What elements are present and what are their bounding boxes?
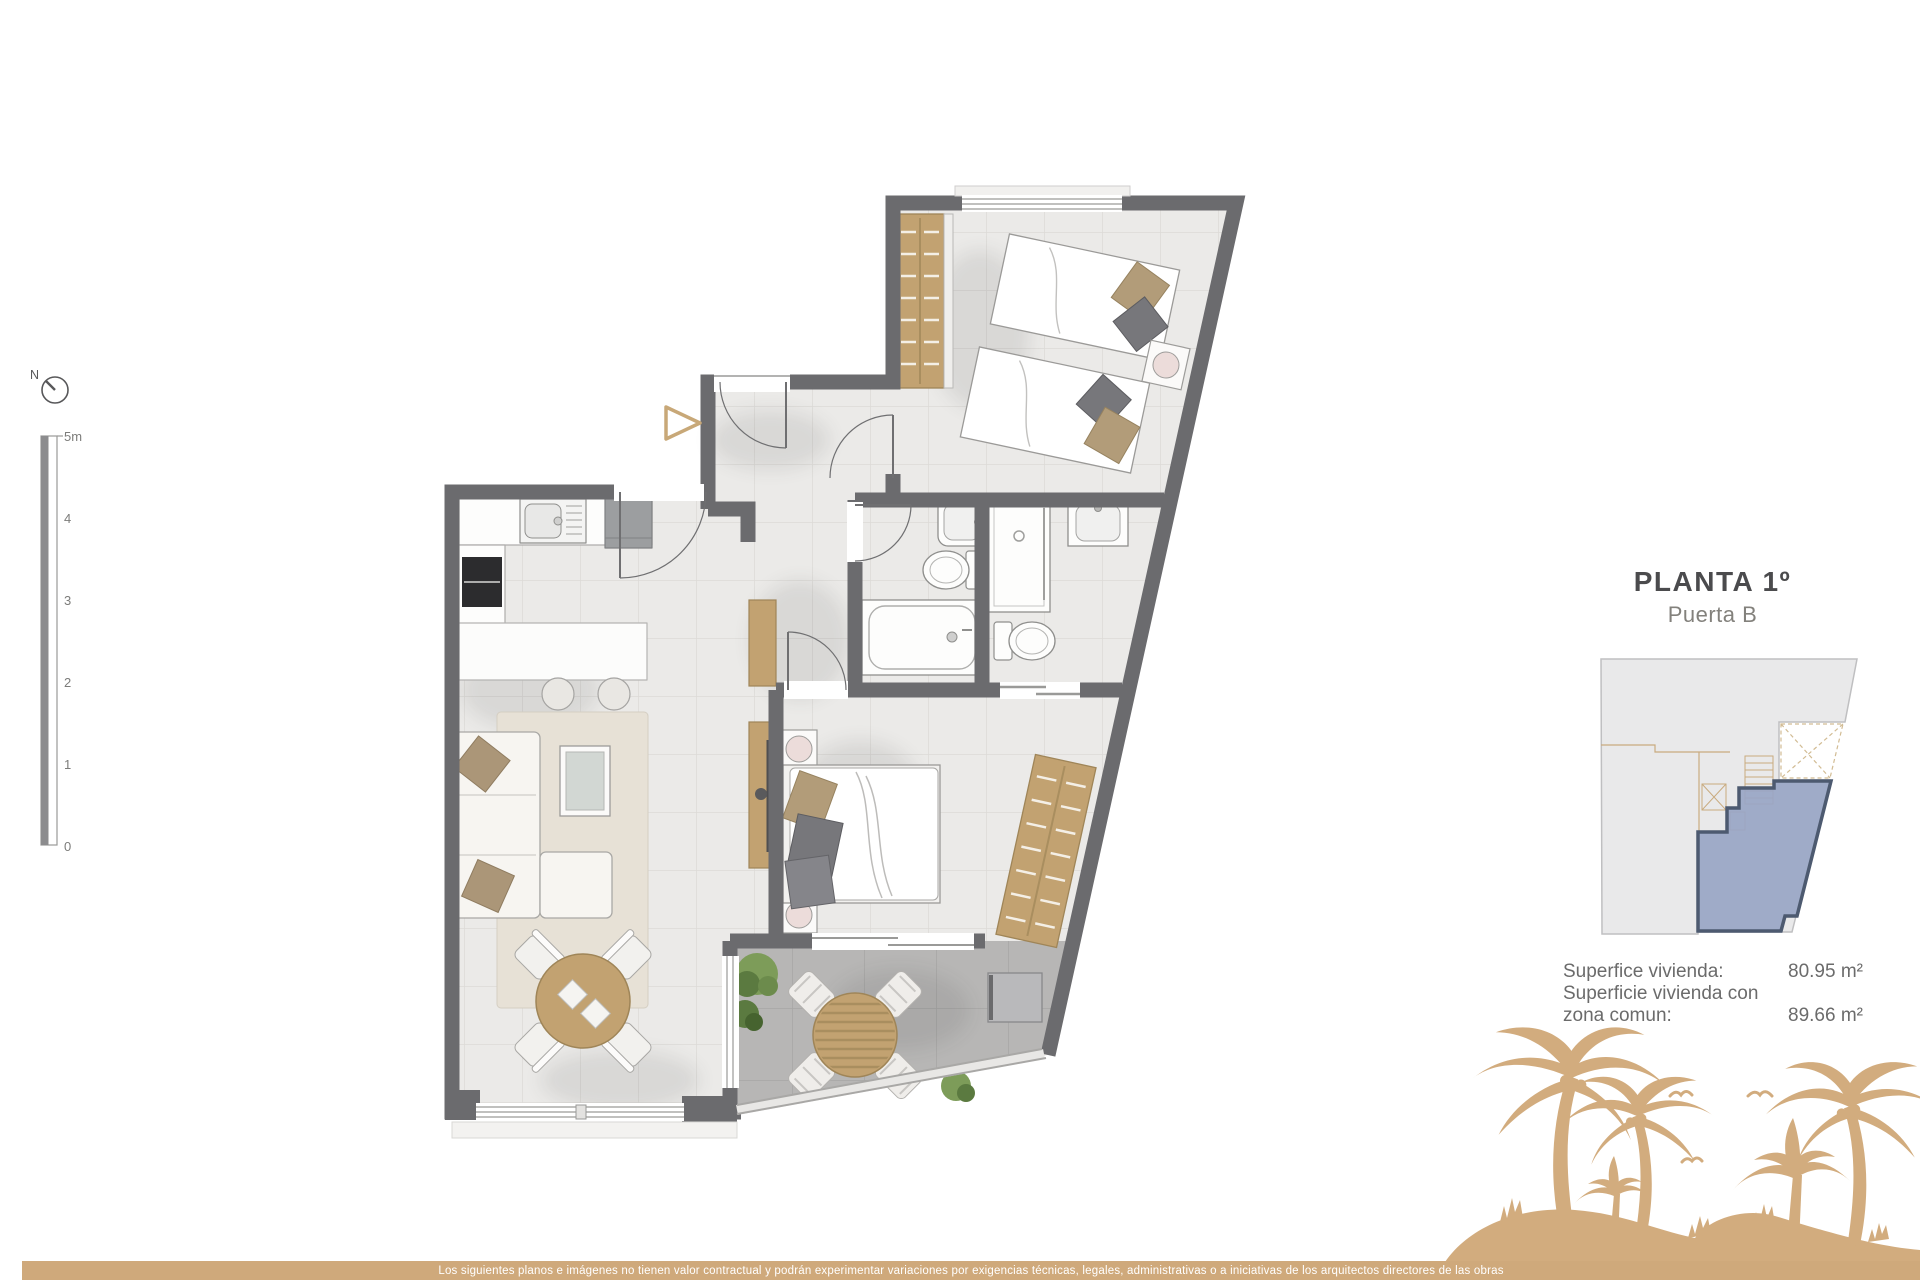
bar-stool [542,678,574,710]
bathtub [862,600,982,675]
bird-icon [1670,1092,1692,1097]
ac-unit [988,973,1042,1022]
scale-label-5m: 5m [64,429,82,444]
kitchen-sink [520,499,586,543]
floorplan-page: N 5m 4 3 2 1 0 [0,0,1920,1280]
kitchen-island [459,623,647,680]
compass-n-label: N [30,368,39,382]
kitchen-fridge [605,495,652,548]
area-row: Superficie vivienda con [1563,983,1863,1005]
toilet [994,622,1055,660]
void-hatch [1781,724,1843,778]
area-label: zona comun: [1563,1005,1672,1027]
ensuite-sliding-door [1000,682,1080,699]
wardrobe [897,214,953,388]
nightstand [1142,340,1190,390]
bar-stool [598,678,630,710]
birds [1670,1092,1772,1163]
lamp [786,736,812,762]
plan-title-block: PLANTA 1º Puerta B [1560,566,1865,628]
scale-label-2: 2 [64,675,71,690]
palm-trees-graphic [1445,1027,1920,1262]
wall-pier [445,1090,480,1120]
plan-graphics: N 5m 4 3 2 1 0 [0,0,1920,1280]
scale-label-1: 1 [64,757,71,772]
area-value: 89.66 m² [1788,1005,1863,1027]
wall-pier [682,1096,737,1122]
scale-label-4: 4 [64,511,71,526]
bird-icon [1682,1158,1702,1162]
scale-label-0: 0 [64,839,71,854]
area-label: Superficie vivienda con [1563,983,1758,1005]
bed-pillow [785,855,835,909]
compass-icon: N [30,368,68,403]
key-plan [1601,659,1857,934]
coffee-table [560,746,610,816]
scale-bar: 5m 4 3 2 1 0 [41,429,82,854]
scale-label-3: 3 [64,593,71,608]
dining-table [536,954,630,1048]
area-row: Superfice vivienda: 80.95 m² [1563,961,1863,983]
terrace-table [813,993,897,1077]
area-label: Superfice vivienda: [1563,961,1724,983]
shower [988,498,1050,612]
surface-areas: Superfice vivienda: 80.95 m² Superficie … [1563,961,1863,1027]
legal-disclaimer: Los siguientes planos e imágenes no tien… [438,1265,1503,1277]
entry-arrow-icon [666,407,700,439]
bird-icon [1748,1092,1772,1096]
bedroom2-window [955,186,1130,212]
footer-bar: Los siguientes planos e imágenes no tien… [22,1261,1920,1280]
area-row: zona comun: 89.66 m² [1563,1005,1863,1027]
hall-sideboard [749,600,776,686]
area-value: 80.95 m² [1788,961,1863,983]
terrace-sliding-door [812,933,974,950]
living-side-window [722,956,739,1088]
floor-plan [445,186,1236,1138]
door-subtitle: Puerta B [1560,602,1865,628]
double-bed [783,765,940,909]
page-title: PLANTA 1º [1560,566,1865,598]
